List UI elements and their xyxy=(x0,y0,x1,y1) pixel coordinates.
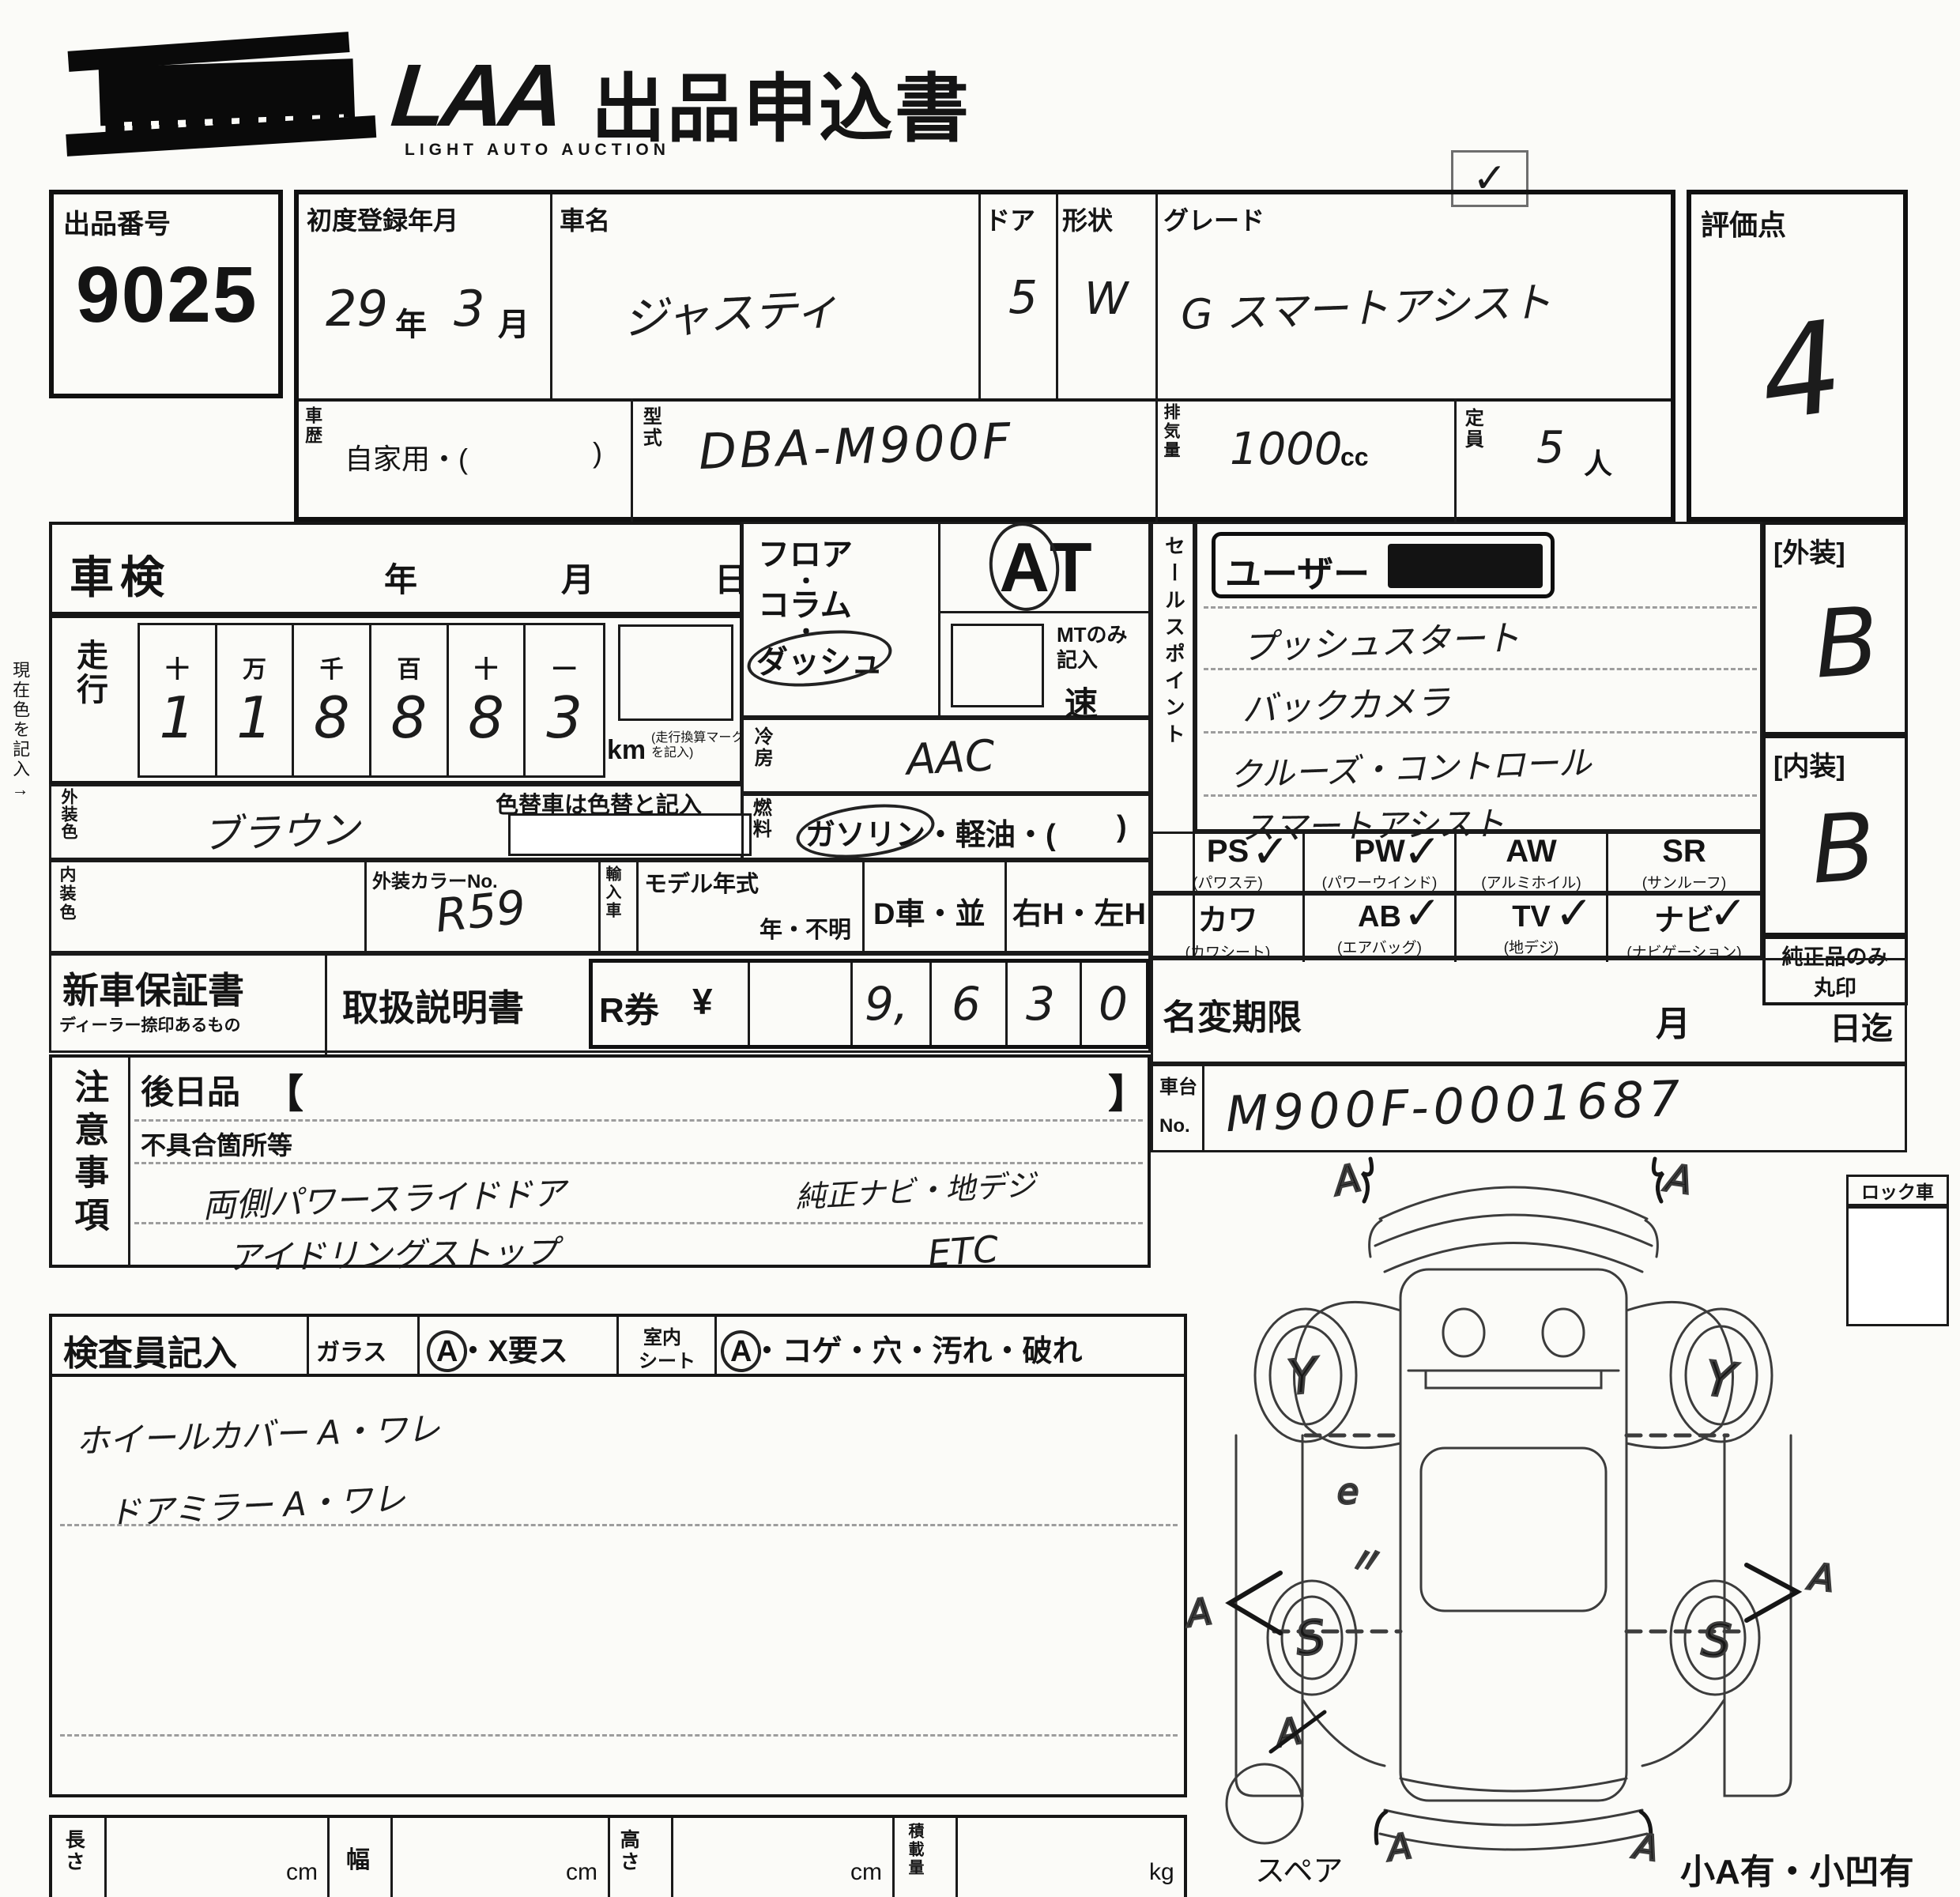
registration-year-value: 29 xyxy=(326,280,388,338)
grade-value: G スマートアシスト xyxy=(1180,269,1553,341)
check-mark: ✓ xyxy=(1403,886,1442,940)
equipment-row-1: PS(パワステ)✓ PW(パワーウインド)✓ AW(アルミホイル) SR(サンル… xyxy=(1151,832,1762,893)
shape-label: 形状 xyxy=(1062,201,1113,237)
digit-value: 1 xyxy=(236,685,273,751)
dimensions-row: 長さ cm 幅 cm 高さ cm 積載量 kg xyxy=(49,1815,1187,1897)
digit-header: 一 xyxy=(552,650,576,685)
registration-month-value: 3 xyxy=(454,280,484,338)
inspection-label: 車検 xyxy=(70,542,171,606)
shift-dash: ダッシュ xyxy=(756,636,883,682)
inspector-line: ホイールカバー A・ワレ xyxy=(75,1402,441,1463)
capacity-unit: 人 xyxy=(1584,441,1612,482)
digit-value: 8 xyxy=(468,685,504,751)
score-label: 評価点 xyxy=(1701,202,1786,243)
inspection-year: 年 xyxy=(384,553,417,602)
inspection-box: 車検 年 月 日 xyxy=(49,522,743,615)
score-value: 4 xyxy=(1751,292,1851,450)
check-mark: ✓ xyxy=(1555,886,1593,940)
fuel-label: 燃料 xyxy=(750,798,770,840)
name-change-until: 日迄 xyxy=(1830,1003,1893,1049)
length-unit: cm xyxy=(286,1859,318,1886)
height-unit: cm xyxy=(850,1859,882,1886)
score-box: 評価点 4 xyxy=(1687,190,1908,522)
equipment-cell-sr: SR(サンルーフ) xyxy=(1608,834,1760,892)
user-stamp: ユーザー xyxy=(1212,532,1555,598)
note-line: ETC xyxy=(926,1228,1000,1275)
history-close: ) xyxy=(593,436,602,470)
exterior-grade-label: [外装] xyxy=(1773,531,1845,570)
dealer-car-options: D車・並 xyxy=(873,889,985,933)
model-code-label: 型式 xyxy=(640,406,660,449)
digit-value: 1 xyxy=(159,685,195,751)
width-unit: cm xyxy=(566,1859,597,1886)
doors-label: ドア xyxy=(985,201,1035,237)
mileage-empty-box xyxy=(618,624,733,721)
damage-mark-rear-left: A xyxy=(1382,1826,1414,1869)
digit-value: 8 xyxy=(390,685,427,751)
interior-grade-box: [内装] B xyxy=(1762,735,1908,936)
digit-header: 十 xyxy=(165,650,189,685)
displacement-label: 排気量 xyxy=(1162,403,1179,460)
check-mark: ✓ xyxy=(1251,824,1290,878)
capacity-label: 定員 xyxy=(1462,408,1482,451)
check-mark: ✓ xyxy=(1403,824,1442,878)
amount-digit: 6 xyxy=(952,977,981,1031)
amount-digit: 9, xyxy=(865,977,908,1031)
doors-value: 5 xyxy=(1008,270,1038,324)
user-stamp-text: ユーザー xyxy=(1225,545,1370,598)
damage-mark-front-left: A xyxy=(1328,1156,1365,1205)
sales-line: クルーズ・コントロール xyxy=(1228,736,1592,797)
exterior-color-value: ブラウン xyxy=(201,798,360,861)
damage-mark-wheel-rear-right: S xyxy=(1700,1612,1732,1668)
capacity-value: 5 xyxy=(1536,422,1565,473)
redacted-stamp-area xyxy=(1388,544,1543,588)
transmission-cell: AT xyxy=(938,524,1153,611)
color-no-value: R59 xyxy=(433,880,529,943)
name-change-row: 名変期限 月 日迄 xyxy=(1151,958,1907,1064)
glass-a: A xyxy=(436,1335,458,1369)
damage-mark-rear-right: A xyxy=(1629,1826,1660,1869)
mileage-note: (走行換算マーク を記入) xyxy=(651,730,751,760)
handle-options: 右H・左H xyxy=(1012,889,1146,933)
equipment-cell-aw: AW(アルミホイル) xyxy=(1457,834,1608,892)
digit-header: 百 xyxy=(397,650,420,685)
interior-row: 内装色 外装カラーNo. R59 輸入車 モデル年式 年・不明 D車・並 右H・… xyxy=(49,860,1151,953)
damage-mark-side-left: A xyxy=(1185,1590,1215,1635)
displacement-value: 1000 xyxy=(1230,424,1343,475)
model-year-value: 年・不明 xyxy=(759,911,851,945)
damage-mark-wheel-rear-left: S xyxy=(1293,1609,1328,1665)
chassis-label-top: 車台 xyxy=(1159,1071,1197,1099)
equipment-cell-ps: PS(パワステ)✓ xyxy=(1153,834,1305,892)
amount-digit: 0 xyxy=(1099,977,1128,1031)
exterior-color-label: 外装色 xyxy=(59,788,77,840)
digit-value: 3 xyxy=(546,685,582,751)
history-label: 車歴 xyxy=(303,406,322,446)
glass-rest: ・X要ス xyxy=(458,1335,567,1368)
ac-value: AAC xyxy=(905,730,996,785)
shift-box: フロア ・ コラム ・ ダッシュ AT MTのみ 記入 速 xyxy=(741,522,1151,718)
equipment-cell-kawa: カワ(カワシート) xyxy=(1153,896,1305,962)
notes-strip-label: 注意事項 xyxy=(70,1069,106,1239)
interior-grade-label: [内装] xyxy=(1773,745,1845,783)
damage-mark-e: e xyxy=(1337,1472,1359,1512)
manual-label: 取扱説明書 xyxy=(342,979,524,1031)
equipment-row-2: カワ(カワシート) AB(エアバッグ)✓ TV(地デジ)✓ ナビ(ナビゲーション… xyxy=(1151,893,1762,958)
damage-mark-ditto: 〃 xyxy=(1347,1541,1381,1582)
sales-line: プッシュスタート xyxy=(1241,609,1521,669)
redacted-dealer-stamp xyxy=(67,31,371,160)
length-label: 長さ xyxy=(63,1829,84,1873)
vehicle-info-table: 初度登録年月 29 年 3 月 車名 ジャスティ ドア 5 形状 W グレード … xyxy=(294,190,1675,522)
amount-digit: 3 xyxy=(1026,977,1055,1031)
note-line: 純正ナビ・地デジ xyxy=(794,1160,1036,1216)
fuel-box: 燃料 ガソリン・軽油・( ) xyxy=(741,794,1151,860)
notes-box: 注意事項 後日品 【 】 不具合箇所等 両側パワースライドドア 純正ナビ・地デジ… xyxy=(49,1054,1151,1268)
sales-box: ユーザー プッシュスタート バックカメラ クルーズ・コントロール スマートアシス… xyxy=(1195,522,1762,832)
check-mark: ✓ xyxy=(1709,886,1747,940)
page-title: 出品申込書 xyxy=(591,49,971,157)
r-ticket-label: R券 xyxy=(599,982,659,1032)
equipment-cell-ab: AB(エアバッグ)✓ xyxy=(1305,896,1457,962)
equipment-cell-navi: ナビ(ナビゲーション)✓ xyxy=(1608,896,1760,962)
sales-strip-label: セールスポイント xyxy=(1163,535,1184,750)
damage-mark-side-right: A xyxy=(1805,1555,1837,1600)
inspection-month: 月 xyxy=(561,553,594,602)
equipment-cell-pw: PW(パワーウインド)✓ xyxy=(1305,834,1457,892)
lot-number-box: 出品番号 9025 xyxy=(49,190,283,398)
mileage-unit: km xyxy=(607,735,646,766)
interior-grade-value: B xyxy=(1807,791,1879,904)
model-year-label: モデル年式 xyxy=(644,866,759,899)
lot-number-value: 9025 xyxy=(76,250,258,341)
displacement-unit: cc xyxy=(1340,443,1369,472)
defect-label: 不具合箇所等 xyxy=(141,1126,292,1162)
fuel-rest: ・軽油・( xyxy=(925,819,1056,852)
load-label: 積載量 xyxy=(906,1823,922,1877)
r-ticket-box: R券 ¥ 9, 6 3 0 xyxy=(589,959,1150,1049)
note-line: アイドリングストップ xyxy=(227,1225,558,1279)
width-label: 幅 xyxy=(346,1840,370,1875)
inspector-box: 検査員記入 ガラス A・X要ス 室内 シート A・コゲ・穴・汚れ・破れ ホイール… xyxy=(49,1314,1187,1797)
digit-value: 8 xyxy=(314,685,350,751)
exterior-grade-box: [外装] B xyxy=(1762,522,1908,735)
history-value: 自家用・( xyxy=(345,436,468,477)
yen-sign: ¥ xyxy=(692,980,713,1023)
fuel-close: ) xyxy=(1117,810,1127,844)
shape-value: W xyxy=(1084,273,1128,325)
fuel-gasoline: ガソリン xyxy=(805,810,925,854)
registration-year-unit: 年 xyxy=(395,299,427,345)
mileage-label: 走行 xyxy=(73,639,106,707)
auction-sheet: LAA LIGHT AUTO AUCTION 出品申込書 ✓ 出品番号 9025… xyxy=(0,0,1960,1897)
car-name-label: 車名 xyxy=(560,201,610,237)
lock-car-label: ロック車 xyxy=(1846,1175,1949,1206)
registration-label: 初度登録年月 xyxy=(307,201,458,237)
warranty-label: 新車保証書 xyxy=(62,962,244,1014)
mt-speed-box xyxy=(951,624,1044,707)
laa-logo: LAA xyxy=(379,44,576,146)
name-change-label: 名変期限 xyxy=(1163,989,1302,1039)
lock-car-box xyxy=(1846,1206,1949,1326)
height-label: 高さ xyxy=(618,1829,639,1873)
name-change-month: 月 xyxy=(1656,995,1690,1046)
mt-note-2: 記入 xyxy=(1057,644,1098,673)
mileage-digit-grid: 十1 万1 千8 百8 十8 一3 xyxy=(138,623,605,778)
bracket-open: 【 xyxy=(264,1062,303,1119)
current-color-note: 現在色を記入→ xyxy=(11,661,29,937)
docs-row: 新車保証書 ディーラー捺印あるもの 取扱説明書 R券 ¥ 9, 6 3 0 xyxy=(49,953,1151,1053)
digit-header: 十 xyxy=(474,650,498,685)
seat-rest: ・コゲ・穴・汚れ・破れ xyxy=(752,1335,1082,1368)
damage-mark-front-right: A xyxy=(1660,1156,1694,1203)
exterior-color-box: 外装色 ブラウン 色替車は色替と記入 xyxy=(49,784,743,860)
car-name-value: ジャスティ xyxy=(621,273,841,348)
mileage-box: 走行 十1 万1 千8 百8 十8 一3 km (走行換算マーク を記入) xyxy=(49,615,743,784)
color-change-box xyxy=(508,813,752,856)
damage-mark-wheel-front-right: Y xyxy=(1702,1351,1740,1409)
digit-header: 万 xyxy=(243,650,266,685)
digit-header: 千 xyxy=(320,650,344,685)
lot-number-label: 出品番号 xyxy=(63,202,171,241)
exterior-grade-value: B xyxy=(1811,586,1882,699)
sales-line: バックカメラ xyxy=(1241,673,1451,731)
import-label: 輸入車 xyxy=(603,866,620,920)
note-line: 両側パワースライドドア xyxy=(202,1167,567,1228)
warranty-sub: ディーラー捺印あるもの xyxy=(59,1013,241,1036)
interior-color-label: 内装色 xyxy=(58,866,75,922)
bracket-close: 】 xyxy=(1108,1062,1148,1119)
seat-label-2: シート xyxy=(639,1345,695,1373)
car-diagram: A A Y Y e 〃 A A S S A A A xyxy=(1185,1126,1841,1869)
ac-box: 冷房 AAC xyxy=(741,718,1151,794)
registration-month-unit: 月 xyxy=(498,299,530,345)
at-a: A xyxy=(999,527,1050,608)
seat-a: A xyxy=(730,1335,752,1369)
inspector-label: 検査員記入 xyxy=(63,1325,237,1375)
grade-label: グレード xyxy=(1163,201,1265,237)
model-code-value: DBA-M900F xyxy=(698,412,1015,481)
glass-label: ガラス xyxy=(316,1333,386,1367)
damage-mark-wheel-front-left: Y xyxy=(1285,1348,1323,1406)
equipment-cell-tv: TV(地デジ)✓ xyxy=(1457,896,1608,962)
ac-label: 冷房 xyxy=(752,726,771,769)
load-unit: kg xyxy=(1149,1859,1174,1886)
later-items-label: 後日品 xyxy=(141,1065,240,1114)
